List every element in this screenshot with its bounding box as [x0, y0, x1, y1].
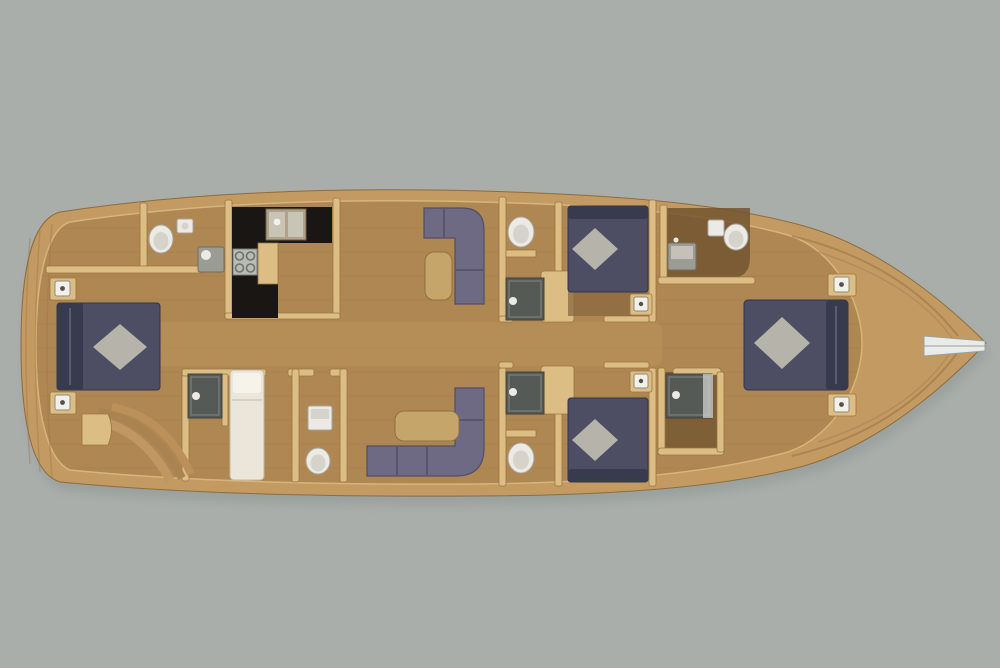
wall-port-corridor-stub2 — [604, 316, 649, 322]
wall-crew-wc-divider — [292, 369, 299, 482]
shower-head — [509, 388, 517, 396]
basin-bowl — [182, 223, 189, 230]
side-table-lower — [395, 411, 459, 441]
side-table-upper — [425, 252, 452, 300]
vip-nightstand-starboard — [828, 394, 856, 416]
wall-stbd-corridor-stub1 — [499, 362, 513, 368]
vanity-basin — [201, 250, 211, 260]
crew-cabin — [230, 370, 264, 480]
wall-bow-shower-left — [658, 368, 665, 455]
shower-head — [509, 297, 517, 305]
sink-basin-right — [288, 212, 303, 237]
cabinet-basin — [311, 409, 329, 419]
floor-plan-canvas — [0, 0, 1000, 668]
shower-head — [672, 391, 680, 399]
vanity-top — [671, 246, 693, 259]
wall-master-top — [46, 266, 204, 273]
cabinet — [708, 220, 724, 236]
shelf — [506, 430, 536, 437]
tap — [674, 238, 679, 243]
bed-pillows — [568, 469, 648, 482]
bench — [82, 414, 112, 445]
vip-nightstand-port — [828, 274, 856, 296]
nightstand — [630, 371, 652, 392]
glass-door — [703, 374, 713, 418]
corridor — [150, 322, 662, 366]
wall-stbd-bath-left — [499, 368, 506, 486]
wall-bow-bath-left — [660, 205, 667, 282]
master-nightstand-starboard — [50, 392, 76, 414]
toilet-bowl — [154, 232, 169, 250]
toilet-bowl — [311, 455, 326, 472]
shelf — [506, 250, 536, 257]
toilet-bowl — [513, 225, 529, 244]
counter-return — [258, 243, 278, 284]
wall-galley-left — [225, 200, 232, 319]
toilet-bowl — [729, 231, 744, 248]
wall-aft-bath-left — [140, 203, 147, 273]
wall-bow-bath-bottom — [658, 277, 755, 284]
shower-room-aft — [188, 374, 222, 418]
galley-sink — [266, 209, 306, 240]
sink-drain — [274, 219, 281, 226]
guest-cabin-port — [568, 206, 652, 316]
wall-stbd-corridor-stub2 — [604, 362, 649, 368]
single-bed-pillow — [233, 373, 261, 393]
nightstand — [630, 294, 652, 315]
vanity — [198, 247, 224, 272]
wall-bow-shower-bottom — [658, 448, 724, 455]
counter-lower-l — [232, 284, 278, 318]
toilet-bowl — [513, 451, 529, 470]
bed-pillows — [568, 206, 648, 219]
shower-room-bow — [666, 374, 713, 418]
wall-wc-right — [340, 369, 347, 482]
wall-galley-right — [333, 198, 340, 319]
yacht-floor-plan — [0, 0, 1000, 668]
wall-bow-shower-right — [717, 372, 724, 452]
shower-head — [192, 392, 200, 400]
master-nightstand-port — [50, 278, 76, 300]
wall-shower-crew-divider — [222, 374, 228, 426]
wall-port-bath-left — [499, 197, 506, 322]
stove-4-burner — [233, 249, 257, 275]
